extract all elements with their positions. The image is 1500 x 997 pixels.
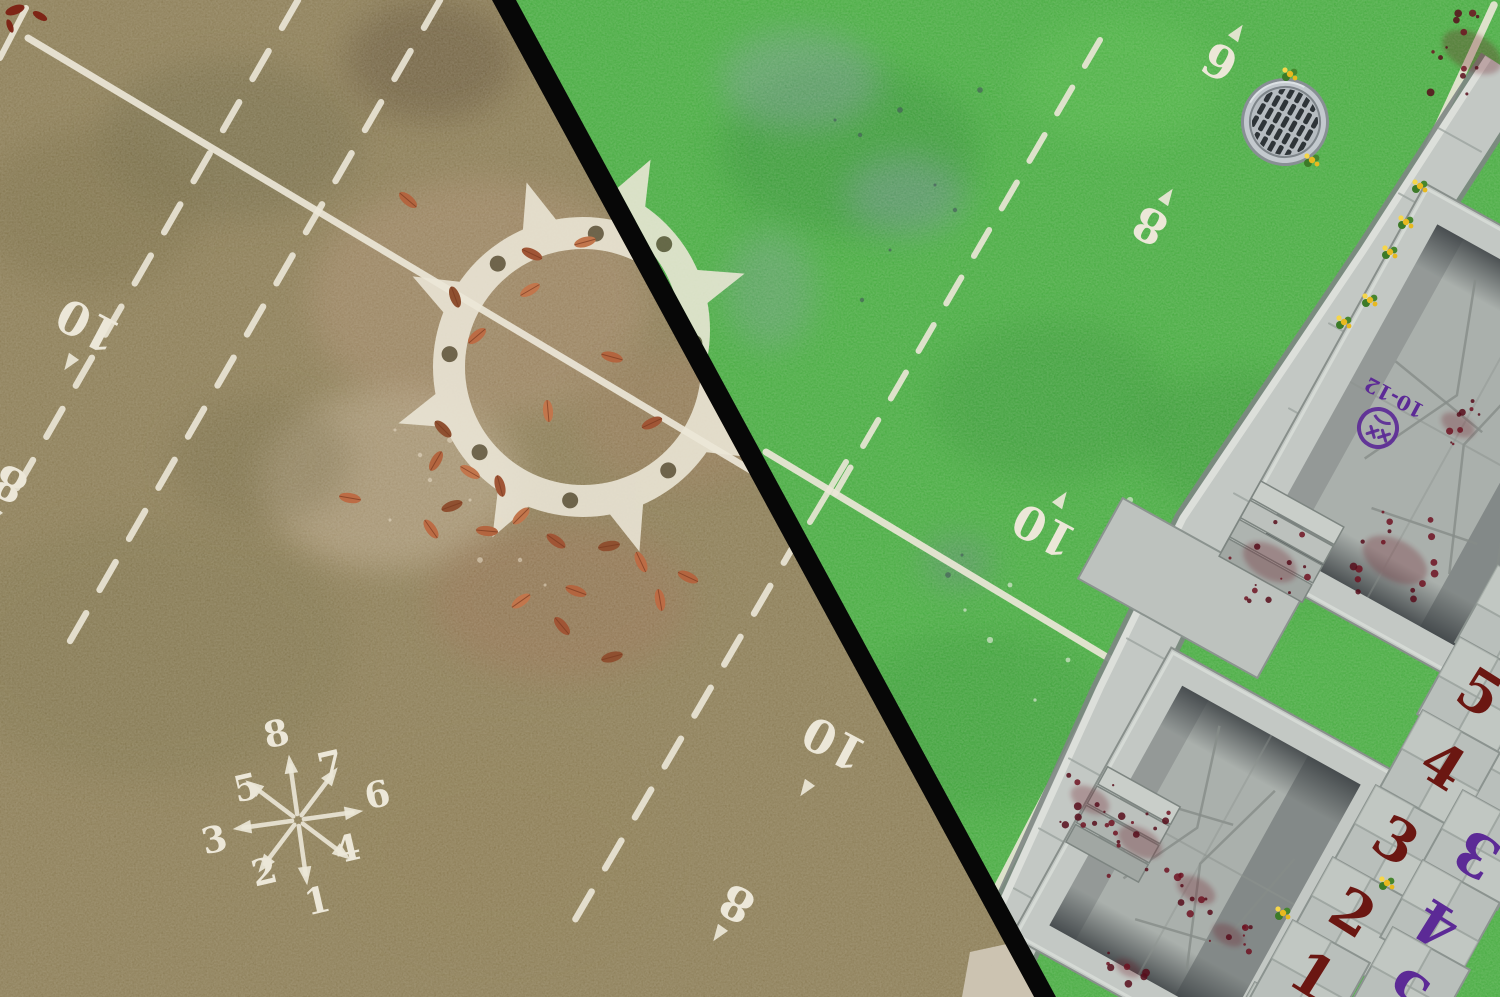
pitch-product-photo: 87563421108108 681010-1254321345 [0, 0, 1500, 997]
green-pitch-root: 681010-1254321345 [0, 0, 1500, 997]
green-pitch-side: 681010-1254321345 [0, 0, 1500, 997]
